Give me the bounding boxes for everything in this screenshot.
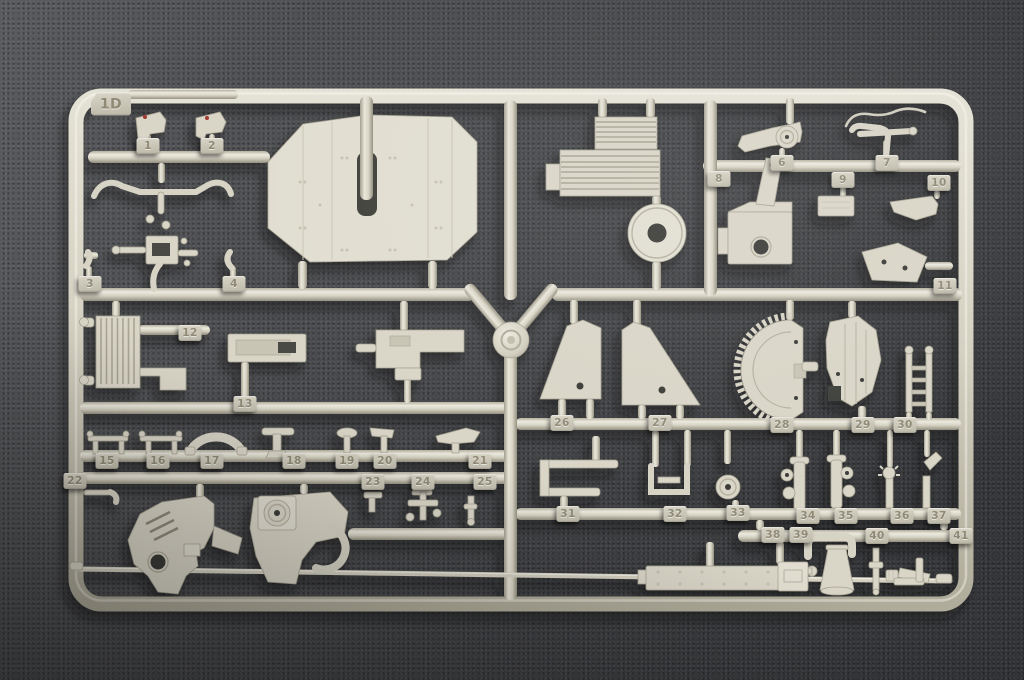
part-number-tag-22: 22 — [64, 473, 87, 489]
part-number-tag-12: 12 — [179, 325, 202, 341]
part-number-tag-20: 20 — [374, 453, 397, 469]
sprue-letter-tag: 1D — [91, 93, 131, 116]
part-number-tag-18: 18 — [283, 453, 306, 469]
part-number-tag-13: 13 — [234, 396, 257, 412]
part-number-tag-40: 40 — [866, 528, 889, 544]
part-number-tag-37: 37 — [928, 508, 951, 524]
part-number-tag-28: 28 — [771, 417, 794, 433]
part-number-tag-39: 39 — [790, 527, 813, 543]
part-number-tag-15: 15 — [96, 453, 119, 469]
part-number-tag-7: 7 — [876, 155, 899, 171]
part-number-tag-3: 3 — [79, 276, 102, 292]
part-number-tag-32: 32 — [664, 506, 687, 522]
part-number-tag-11: 11 — [934, 278, 957, 294]
part-number-tag-35: 35 — [835, 508, 858, 524]
part-number-tag-8: 8 — [708, 171, 731, 187]
part-number-tag-9: 9 — [832, 172, 855, 188]
part-number-tag-24: 24 — [412, 474, 435, 490]
part-number-tag-16: 16 — [147, 453, 170, 469]
part-number-tag-10: 10 — [928, 175, 951, 191]
part-number-tag-38: 38 — [762, 527, 785, 543]
part-number-tag-33: 33 — [727, 505, 750, 521]
part-number-tag-25: 25 — [474, 474, 497, 490]
part-number-tag-26: 26 — [551, 415, 574, 431]
part-number-tag-6: 6 — [771, 155, 794, 171]
part-number-tag-21: 21 — [469, 453, 492, 469]
part-number-tag-4: 4 — [223, 276, 246, 292]
part-number-tag-29: 29 — [852, 417, 875, 433]
part-number-tag-2: 2 — [201, 138, 224, 154]
part-number-tag-19: 19 — [336, 453, 359, 469]
part-number-tag-41: 41 — [950, 528, 973, 544]
part-number-tag-27: 27 — [649, 415, 672, 431]
part-number-tag-34: 34 — [797, 508, 820, 524]
part-number-tag-31: 31 — [557, 506, 580, 522]
part-number-tag-36: 36 — [891, 508, 914, 524]
part-number-tag-1: 1 — [137, 138, 160, 154]
part-number-tags-layer: 1D 1234678910111213151617181920212223242… — [0, 0, 1024, 680]
part-number-tag-17: 17 — [201, 453, 224, 469]
model-kit-sprue-photo: 1D 1234678910111213151617181920212223242… — [0, 0, 1024, 680]
part-number-tag-30: 30 — [894, 417, 917, 433]
part-number-tag-23: 23 — [362, 474, 385, 490]
